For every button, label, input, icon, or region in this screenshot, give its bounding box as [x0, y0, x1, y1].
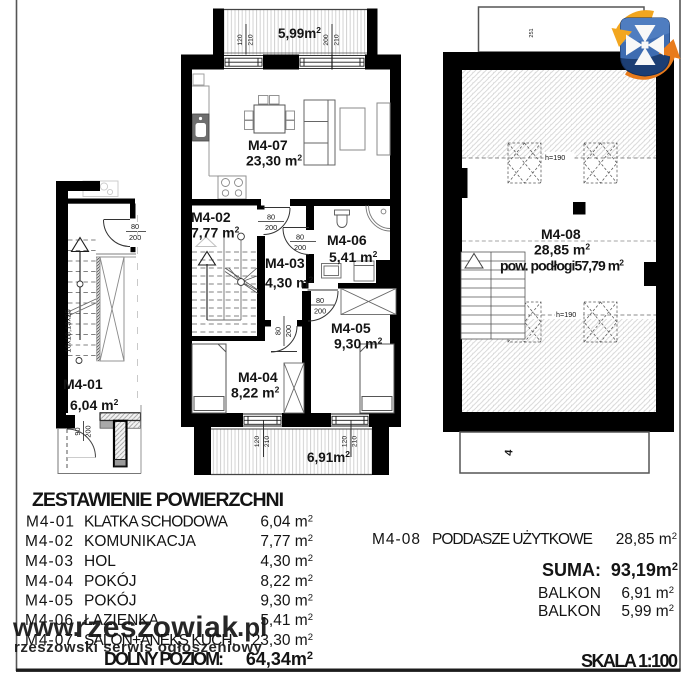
svg-text:5,41 m2: 5,41 m2 [260, 612, 313, 629]
svg-text:7,77 m2: 7,77 m2 [260, 533, 313, 550]
svg-text:200: 200 [323, 34, 330, 45]
svg-text:5,41 m2: 5,41 m2 [329, 249, 378, 265]
svg-text:POKÓJ: POKÓJ [84, 573, 137, 590]
svg-text:HOL: HOL [84, 553, 116, 570]
svg-text:M4-03: M4-03 [265, 255, 305, 271]
svg-text:7,77 m2: 7,77 m2 [191, 225, 240, 241]
svg-text:POKÓJ: POKÓJ [84, 593, 137, 610]
svg-text:120: 120 [342, 436, 349, 447]
svg-text:h=190: h=190 [545, 153, 565, 162]
svg-text:210: 210 [264, 436, 271, 447]
svg-text:.pl: .pl [237, 612, 267, 642]
svg-text:PODDASZE UŻYTKOWE: PODDASZE UŻYTKOWE [432, 530, 593, 548]
svg-text:80: 80 [316, 296, 324, 305]
svg-text:6,91 m2: 6,91 m2 [621, 585, 674, 602]
svg-text:KOMUNIKACJA: KOMUNIKACJA [84, 533, 197, 550]
svg-text:M4-08: M4-08 [541, 226, 581, 242]
svg-text:M4-05: M4-05 [331, 320, 371, 336]
svg-text:M4-01: M4-01 [26, 513, 75, 530]
svg-text:8,22 m2: 8,22 m2 [260, 573, 313, 590]
svg-text:28,85 m2: 28,85 m2 [616, 531, 677, 548]
svg-text:M4-01: M4-01 [63, 376, 103, 392]
svg-text:h=190: h=190 [556, 310, 576, 319]
svg-text:6,04 m2: 6,04 m2 [260, 513, 313, 530]
svg-text:23,30 m2: 23,30 m2 [246, 153, 302, 169]
svg-text:200: 200 [265, 223, 277, 232]
svg-text:210: 210 [334, 34, 341, 45]
svg-text:M4-02: M4-02 [25, 533, 74, 550]
svg-text:200: 200 [294, 243, 306, 252]
svg-text:www.: www. [12, 612, 80, 642]
svg-text:6,04 m2: 6,04 m2 [70, 397, 119, 413]
svg-text:251: 251 [529, 28, 535, 37]
svg-text:80: 80 [131, 222, 139, 231]
svg-text:M4-04: M4-04 [25, 573, 74, 590]
svg-text:200: 200 [314, 307, 326, 316]
svg-text:M4-03: M4-03 [25, 553, 74, 570]
svg-text:BALKON: BALKON [538, 603, 601, 620]
svg-text:80: 80 [274, 327, 283, 335]
svg-text:M4-08: M4-08 [372, 531, 421, 548]
svg-text:M4-05: M4-05 [25, 593, 74, 610]
svg-text:8,22 m2: 8,22 m2 [231, 385, 280, 401]
svg-text:SUMA:: SUMA: [542, 560, 601, 580]
svg-text:4,30 m2: 4,30 m2 [265, 275, 314, 291]
svg-text:16x18,13x25: 16x18,13x25 [64, 309, 73, 353]
svg-text:M4-06: M4-06 [327, 232, 367, 248]
svg-text:200: 200 [129, 233, 141, 242]
svg-text:BALKON: BALKON [538, 585, 601, 602]
svg-text:93,19m2: 93,19m2 [611, 560, 678, 580]
svg-text:pow. podłogi57,79 m2: pow. podłogi57,79 m2 [500, 258, 624, 274]
svg-text:M4-04: M4-04 [238, 369, 278, 385]
svg-text:5,99m2: 5,99m2 [278, 25, 321, 41]
svg-text:210: 210 [248, 34, 255, 45]
svg-text:5,99 m2: 5,99 m2 [621, 603, 674, 620]
svg-text:28,85 m2: 28,85 m2 [534, 242, 590, 258]
svg-text:80: 80 [296, 233, 304, 242]
svg-text:M4-02: M4-02 [191, 209, 231, 225]
svg-text:9,30 m2: 9,30 m2 [334, 336, 383, 352]
svg-text:120: 120 [254, 436, 261, 447]
svg-text:120: 120 [237, 34, 244, 45]
svg-text:9,30 m2: 9,30 m2 [260, 593, 313, 610]
svg-text:210: 210 [352, 436, 359, 447]
svg-text:6,91m2: 6,91m2 [307, 449, 350, 465]
svg-text:90: 90 [73, 427, 82, 435]
svg-text:4,30 m2: 4,30 m2 [260, 553, 313, 570]
svg-text:KLATKA SCHODOWA: KLATKA SCHODOWA [84, 513, 229, 530]
svg-text:80: 80 [267, 213, 275, 222]
svg-text:rzeszowski serwis ogłoszeniowy: rzeszowski serwis ogłoszeniowy [14, 639, 263, 656]
svg-text:200: 200 [84, 425, 93, 437]
svg-text:ZESTAWIENIE POWIERZCHNI: ZESTAWIENIE POWIERZCHNI [32, 489, 284, 511]
svg-text:SKALA 1:100: SKALA 1:100 [581, 651, 678, 671]
svg-text:200: 200 [284, 325, 293, 337]
svg-text:M4-07: M4-07 [248, 137, 288, 153]
